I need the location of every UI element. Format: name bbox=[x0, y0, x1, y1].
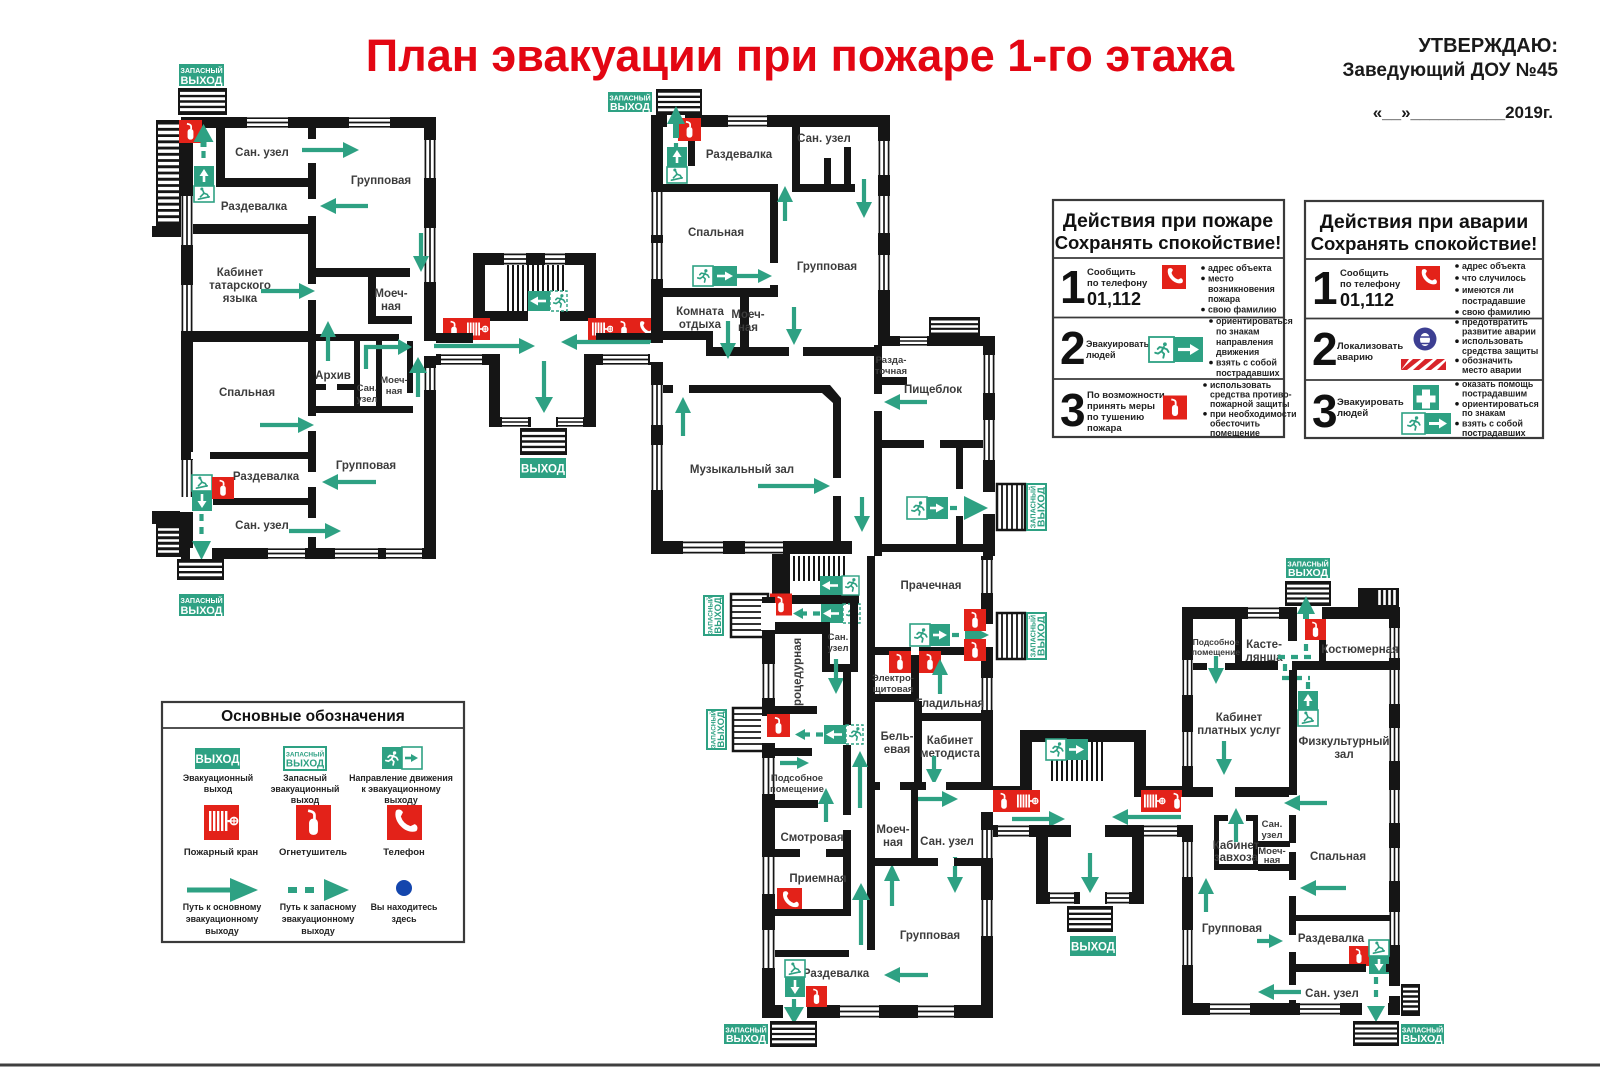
svg-text:ВЫХОД: ВЫХОД bbox=[196, 754, 240, 766]
svg-text:Кабинет: Кабинет bbox=[927, 735, 974, 747]
svg-text:ВЫХОД: ВЫХОД bbox=[716, 711, 727, 748]
svg-text:использовать: использовать bbox=[1210, 380, 1272, 390]
svg-text:Пищеблок: Пищеблок bbox=[904, 384, 962, 396]
svg-text:ВЫХОД: ВЫХОД bbox=[180, 75, 222, 87]
svg-text:ная: ная bbox=[381, 301, 401, 313]
svg-text:Путь к основному: Путь к основному bbox=[183, 902, 262, 912]
svg-text:Архив: Архив bbox=[315, 370, 351, 382]
svg-text:ВЫХОД: ВЫХОД bbox=[713, 597, 724, 634]
svg-text:лянша: лянша bbox=[1246, 652, 1284, 664]
svg-text:развитие аварии: развитие аварии bbox=[1462, 327, 1536, 337]
svg-text:ная: ная bbox=[386, 386, 403, 397]
svg-text:Групповая: Групповая bbox=[1202, 923, 1262, 935]
svg-text:Действия при аварии: Действия при аварии bbox=[1320, 211, 1529, 233]
svg-text:ВЫХОД: ВЫХОД bbox=[521, 464, 565, 476]
svg-text:средства противо-: средства противо- bbox=[1210, 390, 1292, 400]
svg-text:Спальная: Спальная bbox=[219, 387, 275, 399]
svg-text:Сан. узел: Сан. узел bbox=[235, 147, 289, 159]
svg-text:зал: зал bbox=[1334, 749, 1353, 761]
svg-text:выходу: выходу bbox=[205, 926, 239, 936]
svg-text:ВЫХОД: ВЫХОД bbox=[726, 1033, 767, 1045]
svg-text:2: 2 bbox=[1312, 323, 1338, 375]
svg-text:пострадавшие: пострадавшие bbox=[1462, 296, 1526, 306]
svg-text:пострадавших: пострадавших bbox=[1216, 368, 1280, 378]
svg-text:Действия при пожаре: Действия при пожаре bbox=[1063, 210, 1273, 232]
svg-text:ная: ная bbox=[738, 322, 758, 334]
svg-text:выход: выход bbox=[291, 795, 320, 805]
svg-text:Моеч-: Моеч- bbox=[731, 309, 764, 321]
svg-text:щитовая: щитовая bbox=[873, 684, 914, 695]
svg-text:эвакуационному: эвакуационному bbox=[186, 914, 259, 924]
svg-text:Моеч-: Моеч- bbox=[380, 375, 407, 386]
svg-text:ВЫХОД: ВЫХОД bbox=[1036, 486, 1048, 527]
svg-text:узел: узел bbox=[1261, 830, 1282, 841]
svg-text:Вы находитесь: Вы находитесь bbox=[371, 902, 438, 912]
svg-text:3: 3 bbox=[1060, 384, 1086, 436]
svg-text:Раздевалка: Раздевалка bbox=[221, 201, 288, 213]
svg-text:языка: языка bbox=[223, 293, 258, 305]
svg-text:свою фамилию: свою фамилию bbox=[1208, 305, 1277, 315]
svg-text:по знакам: по знакам bbox=[1216, 326, 1260, 336]
svg-text:отдыха: отдыха bbox=[679, 319, 722, 331]
svg-text:1: 1 bbox=[1312, 262, 1338, 314]
svg-text:ВЫХОД: ВЫХОД bbox=[286, 759, 324, 770]
svg-text:ВЫХОД: ВЫХОД bbox=[1071, 942, 1115, 954]
svg-text:Раздевалка: Раздевалка bbox=[803, 968, 870, 980]
svg-text:обесточить: обесточить bbox=[1210, 418, 1261, 428]
svg-text:адрес объекта: адрес объекта bbox=[1462, 261, 1526, 271]
svg-text:«__»__________2019г.: «__»__________2019г. bbox=[1373, 103, 1553, 122]
svg-text:Эвакуационный: Эвакуационный bbox=[183, 773, 253, 783]
svg-text:средства защиты: средства защиты bbox=[1462, 346, 1538, 356]
svg-text:имеются ли: имеются ли bbox=[1462, 285, 1514, 295]
svg-text:Спальная: Спальная bbox=[688, 227, 744, 239]
svg-text:людей: людей bbox=[1086, 350, 1116, 360]
svg-text:точная: точная bbox=[875, 366, 907, 377]
svg-text:Сообщить: Сообщить bbox=[1087, 267, 1136, 278]
svg-text:узел: узел bbox=[356, 394, 377, 405]
svg-text:Музыкальный зал: Музыкальный зал bbox=[690, 464, 794, 476]
svg-text:Раздевалка: Раздевалка bbox=[1298, 933, 1365, 945]
svg-text:Бель-: Бель- bbox=[881, 731, 914, 743]
svg-text:свою фамилию: свою фамилию bbox=[1462, 307, 1531, 317]
svg-text:Сан. узел: Сан. узел bbox=[920, 836, 974, 848]
svg-text:План эвакуации при пожаре 1-го: План эвакуации при пожаре 1-го этажа bbox=[366, 30, 1235, 81]
svg-text:выходу: выходу bbox=[301, 926, 335, 936]
svg-text:ная: ная bbox=[883, 837, 903, 849]
svg-text:помещение: помещение bbox=[770, 784, 824, 795]
svg-text:Спальная: Спальная bbox=[1310, 851, 1366, 863]
svg-text:Направление движения: Направление движения bbox=[349, 773, 453, 783]
svg-text:пожара: пожара bbox=[1087, 423, 1122, 434]
svg-text:ВЫХОД: ВЫХОД bbox=[1402, 1033, 1443, 1045]
svg-text:Сан.: Сан. bbox=[1262, 819, 1283, 830]
svg-text:предотвратить: предотвратить bbox=[1462, 317, 1528, 327]
svg-text:Костюмерная: Костюмерная bbox=[1321, 644, 1399, 656]
svg-text:Подсобное: Подсобное bbox=[1193, 637, 1240, 647]
svg-text:Физкультурный: Физкультурный bbox=[1299, 736, 1390, 748]
svg-text:ВЫХОД: ВЫХОД bbox=[180, 605, 222, 617]
svg-text:Гладильная: Гладильная bbox=[916, 698, 984, 710]
svg-text:Телефон: Телефон bbox=[383, 847, 425, 858]
svg-text:по знакам: по знакам bbox=[1462, 408, 1506, 418]
svg-text:Сан.: Сан. bbox=[357, 383, 378, 394]
svg-text:Сан. узел: Сан. узел bbox=[1305, 988, 1359, 1000]
svg-text:3: 3 bbox=[1312, 385, 1338, 437]
svg-text:выходу: выходу bbox=[384, 795, 418, 805]
svg-text:Эвакуировать: Эвакуировать bbox=[1086, 339, 1150, 349]
svg-text:Процедурная: Процедурная bbox=[792, 638, 804, 715]
svg-text:адрес объекта: адрес объекта bbox=[1208, 263, 1272, 273]
svg-text:Сан.: Сан. bbox=[828, 632, 849, 643]
svg-text:Кабинет: Кабинет bbox=[1216, 712, 1263, 724]
svg-text:по телефону: по телефону bbox=[1340, 279, 1401, 290]
svg-text:направления: направления bbox=[1216, 337, 1273, 347]
svg-text:Заведующий ДОУ №45: Заведующий ДОУ №45 bbox=[1343, 60, 1559, 81]
svg-text:Пожарный кран: Пожарный кран bbox=[184, 847, 259, 858]
svg-text:Групповая: Групповая bbox=[336, 460, 396, 472]
svg-text:Раздевалка: Раздевалка bbox=[233, 471, 300, 483]
svg-text:принять меры: принять меры bbox=[1087, 401, 1155, 412]
svg-text:обозначить: обозначить bbox=[1462, 355, 1513, 365]
svg-text:Раздевалка: Раздевалка bbox=[706, 149, 773, 161]
svg-text:Моеч-: Моеч- bbox=[876, 824, 909, 836]
svg-text:Основные обозначения: Основные обозначения bbox=[221, 708, 405, 725]
svg-text:УТВЕРЖДАЮ:: УТВЕРЖДАЮ: bbox=[1418, 35, 1558, 57]
svg-text:место аварии: место аварии bbox=[1462, 365, 1521, 375]
svg-text:ЗАПАСНЫЙ: ЗАПАСНЫЙ bbox=[286, 750, 325, 759]
svg-text:при необходимости: при необходимости bbox=[1210, 409, 1297, 419]
svg-text:1: 1 bbox=[1060, 261, 1086, 313]
svg-text:Сохранять спокойствие!: Сохранять спокойствие! bbox=[1311, 233, 1538, 254]
svg-text:Сохранять спокойствие!: Сохранять спокойствие! bbox=[1055, 232, 1282, 253]
svg-text:По возможности: По возможности bbox=[1087, 390, 1165, 401]
svg-text:Путь к запасному: Путь к запасному bbox=[280, 902, 357, 912]
svg-text:людей: людей bbox=[1337, 408, 1368, 419]
svg-text:Электро-: Электро- bbox=[872, 673, 914, 684]
svg-text:ВЫХОД: ВЫХОД bbox=[1036, 615, 1048, 656]
svg-text:пострадавших: пострадавших bbox=[1462, 428, 1526, 438]
svg-text:к эвакуационному: к эвакуационному bbox=[361, 784, 440, 794]
svg-text:эвакуационному: эвакуационному bbox=[282, 914, 355, 924]
svg-text:01,112: 01,112 bbox=[1340, 290, 1394, 310]
svg-text:евая: евая bbox=[884, 744, 910, 756]
svg-text:пожарной защиты: пожарной защиты bbox=[1210, 399, 1290, 409]
svg-text:Огнетушитель: Огнетушитель bbox=[279, 847, 347, 858]
svg-text:помещение: помещение bbox=[1192, 647, 1240, 657]
svg-text:методиста: методиста bbox=[920, 748, 981, 760]
svg-text:взять с собой: взять с собой bbox=[1216, 358, 1277, 368]
svg-text:Сан. узел: Сан. узел bbox=[235, 520, 289, 532]
svg-text:Комната: Комната bbox=[676, 306, 724, 318]
svg-text:Локализовать: Локализовать bbox=[1337, 341, 1403, 352]
svg-text:здесь: здесь bbox=[391, 914, 417, 924]
svg-text:01,112: 01,112 bbox=[1087, 289, 1141, 309]
svg-text:2: 2 bbox=[1060, 322, 1086, 374]
svg-text:возникновения: возникновения bbox=[1208, 284, 1275, 294]
svg-text:пожара: пожара bbox=[1208, 294, 1240, 304]
svg-text:место: место bbox=[1208, 273, 1234, 283]
svg-text:Запасный: Запасный bbox=[283, 773, 327, 783]
svg-text:Разда-: Разда- bbox=[876, 355, 907, 366]
svg-text:Эвакуировать: Эвакуировать bbox=[1337, 397, 1404, 408]
svg-text:узел: узел bbox=[827, 643, 848, 654]
svg-text:Кабинет: Кабинет bbox=[217, 267, 264, 279]
svg-text:Сообщить: Сообщить bbox=[1340, 268, 1389, 279]
svg-text:что случилось: что случилось bbox=[1462, 273, 1527, 283]
svg-text:Сан. узел: Сан. узел bbox=[797, 133, 851, 145]
svg-text:Прачечная: Прачечная bbox=[901, 580, 962, 592]
svg-text:Приемная: Приемная bbox=[789, 873, 846, 885]
svg-text:завхоза: завхоза bbox=[1214, 852, 1259, 864]
svg-text:ВЫХОД: ВЫХОД bbox=[1288, 567, 1329, 579]
svg-text:по телефону: по телефону bbox=[1087, 278, 1148, 289]
svg-text:Групповая: Групповая bbox=[797, 261, 857, 273]
svg-text:платных услуг: платных услуг bbox=[1197, 725, 1281, 737]
svg-text:Смотровая: Смотровая bbox=[780, 832, 843, 844]
svg-text:Моеч-: Моеч- bbox=[374, 288, 407, 300]
svg-text:движения: движения bbox=[1216, 347, 1259, 357]
svg-text:использовать: использовать bbox=[1462, 336, 1524, 346]
svg-text:по тушению: по тушению bbox=[1087, 412, 1144, 423]
svg-text:выход: выход bbox=[204, 784, 233, 794]
svg-text:Касте-: Касте- bbox=[1246, 639, 1282, 651]
svg-text:пострадавшим: пострадавшим bbox=[1462, 388, 1527, 398]
svg-text:Подсобное: Подсобное bbox=[771, 773, 823, 784]
svg-text:ориентироваться: ориентироваться bbox=[1216, 316, 1293, 326]
svg-text:эвакуационный: эвакуационный bbox=[271, 784, 340, 794]
svg-text:Групповая: Групповая bbox=[351, 175, 411, 187]
svg-text:помещение: помещение bbox=[1210, 428, 1260, 438]
svg-text:ная: ная bbox=[1264, 855, 1281, 866]
svg-text:ВЫХОД: ВЫХОД bbox=[610, 101, 651, 113]
svg-text:аварию: аварию bbox=[1337, 352, 1373, 363]
svg-text:Групповая: Групповая bbox=[900, 930, 960, 942]
